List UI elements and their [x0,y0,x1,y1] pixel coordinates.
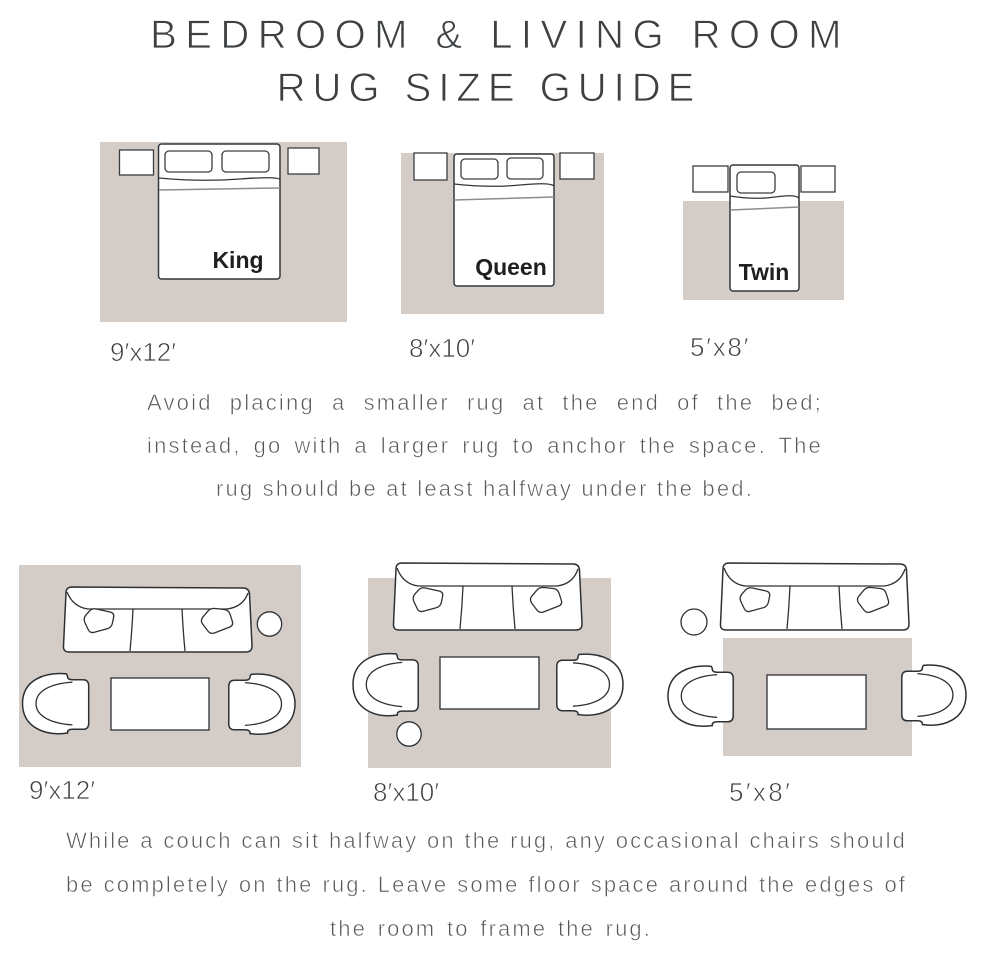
svg-text:Queen: Queen [475,254,547,280]
svg-text:King: King [212,247,263,273]
svg-text:Twin: Twin [739,259,790,285]
